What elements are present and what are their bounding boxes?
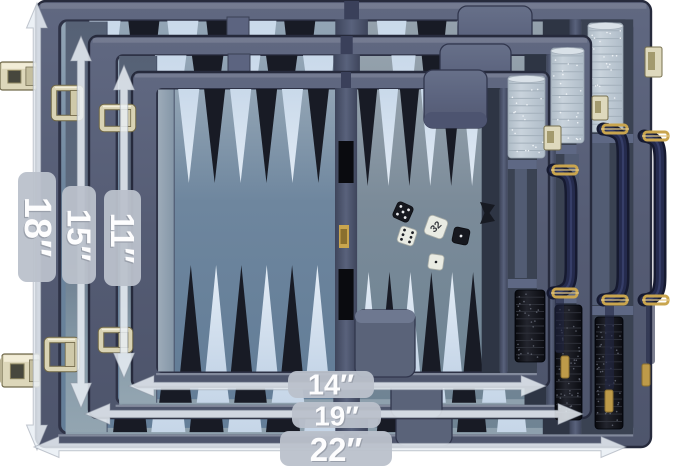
- svg-text:22″: 22″: [310, 431, 363, 468]
- svg-text:14″: 14″: [308, 370, 354, 402]
- svg-text:11″: 11″: [104, 213, 141, 264]
- svg-text:18″: 18″: [16, 197, 58, 257]
- svg-text:19″: 19″: [314, 401, 359, 432]
- svg-text:15″: 15″: [61, 209, 98, 262]
